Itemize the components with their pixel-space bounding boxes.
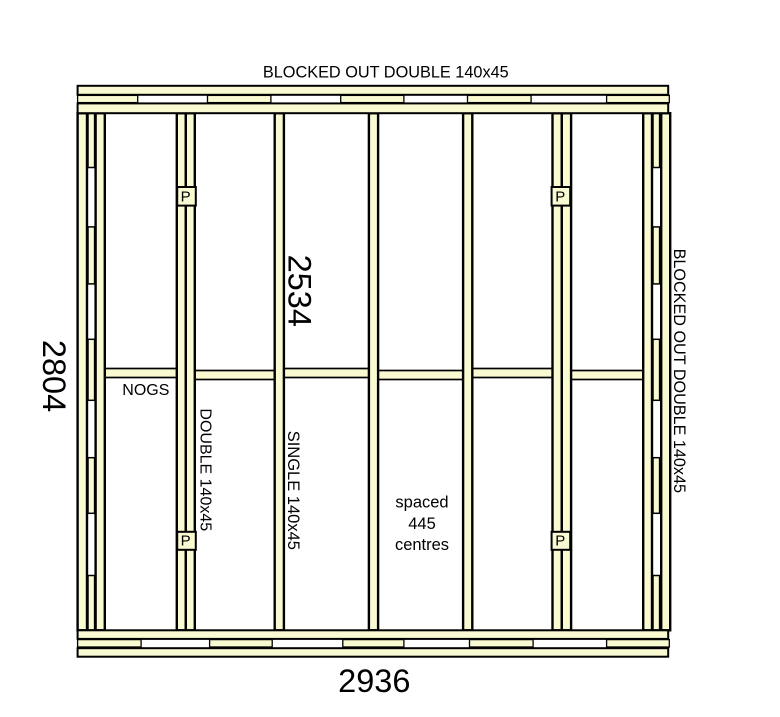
svg-text:2936: 2936 bbox=[338, 663, 410, 699]
svg-text:BLOCKED OUT DOUBLE 140x45: BLOCKED OUT DOUBLE 140x45 bbox=[263, 64, 509, 82]
svg-text:NOGS: NOGS bbox=[122, 382, 169, 399]
svg-text:centres: centres bbox=[395, 536, 449, 554]
svg-text:P: P bbox=[555, 188, 565, 205]
svg-text:SINGLE 140x45: SINGLE 140x45 bbox=[284, 431, 302, 550]
svg-text:BLOCKED OUT DOUBLE 140x45: BLOCKED OUT DOUBLE 140x45 bbox=[670, 249, 688, 493]
svg-text:P: P bbox=[181, 533, 191, 550]
svg-text:DOUBLE 140x45: DOUBLE 140x45 bbox=[197, 408, 214, 531]
svg-text:445: 445 bbox=[408, 515, 436, 533]
svg-text:2534: 2534 bbox=[282, 255, 318, 327]
svg-text:P: P bbox=[555, 533, 565, 550]
svg-text:spaced: spaced bbox=[395, 494, 448, 512]
svg-text:2804: 2804 bbox=[36, 340, 72, 412]
svg-text:P: P bbox=[181, 188, 191, 205]
